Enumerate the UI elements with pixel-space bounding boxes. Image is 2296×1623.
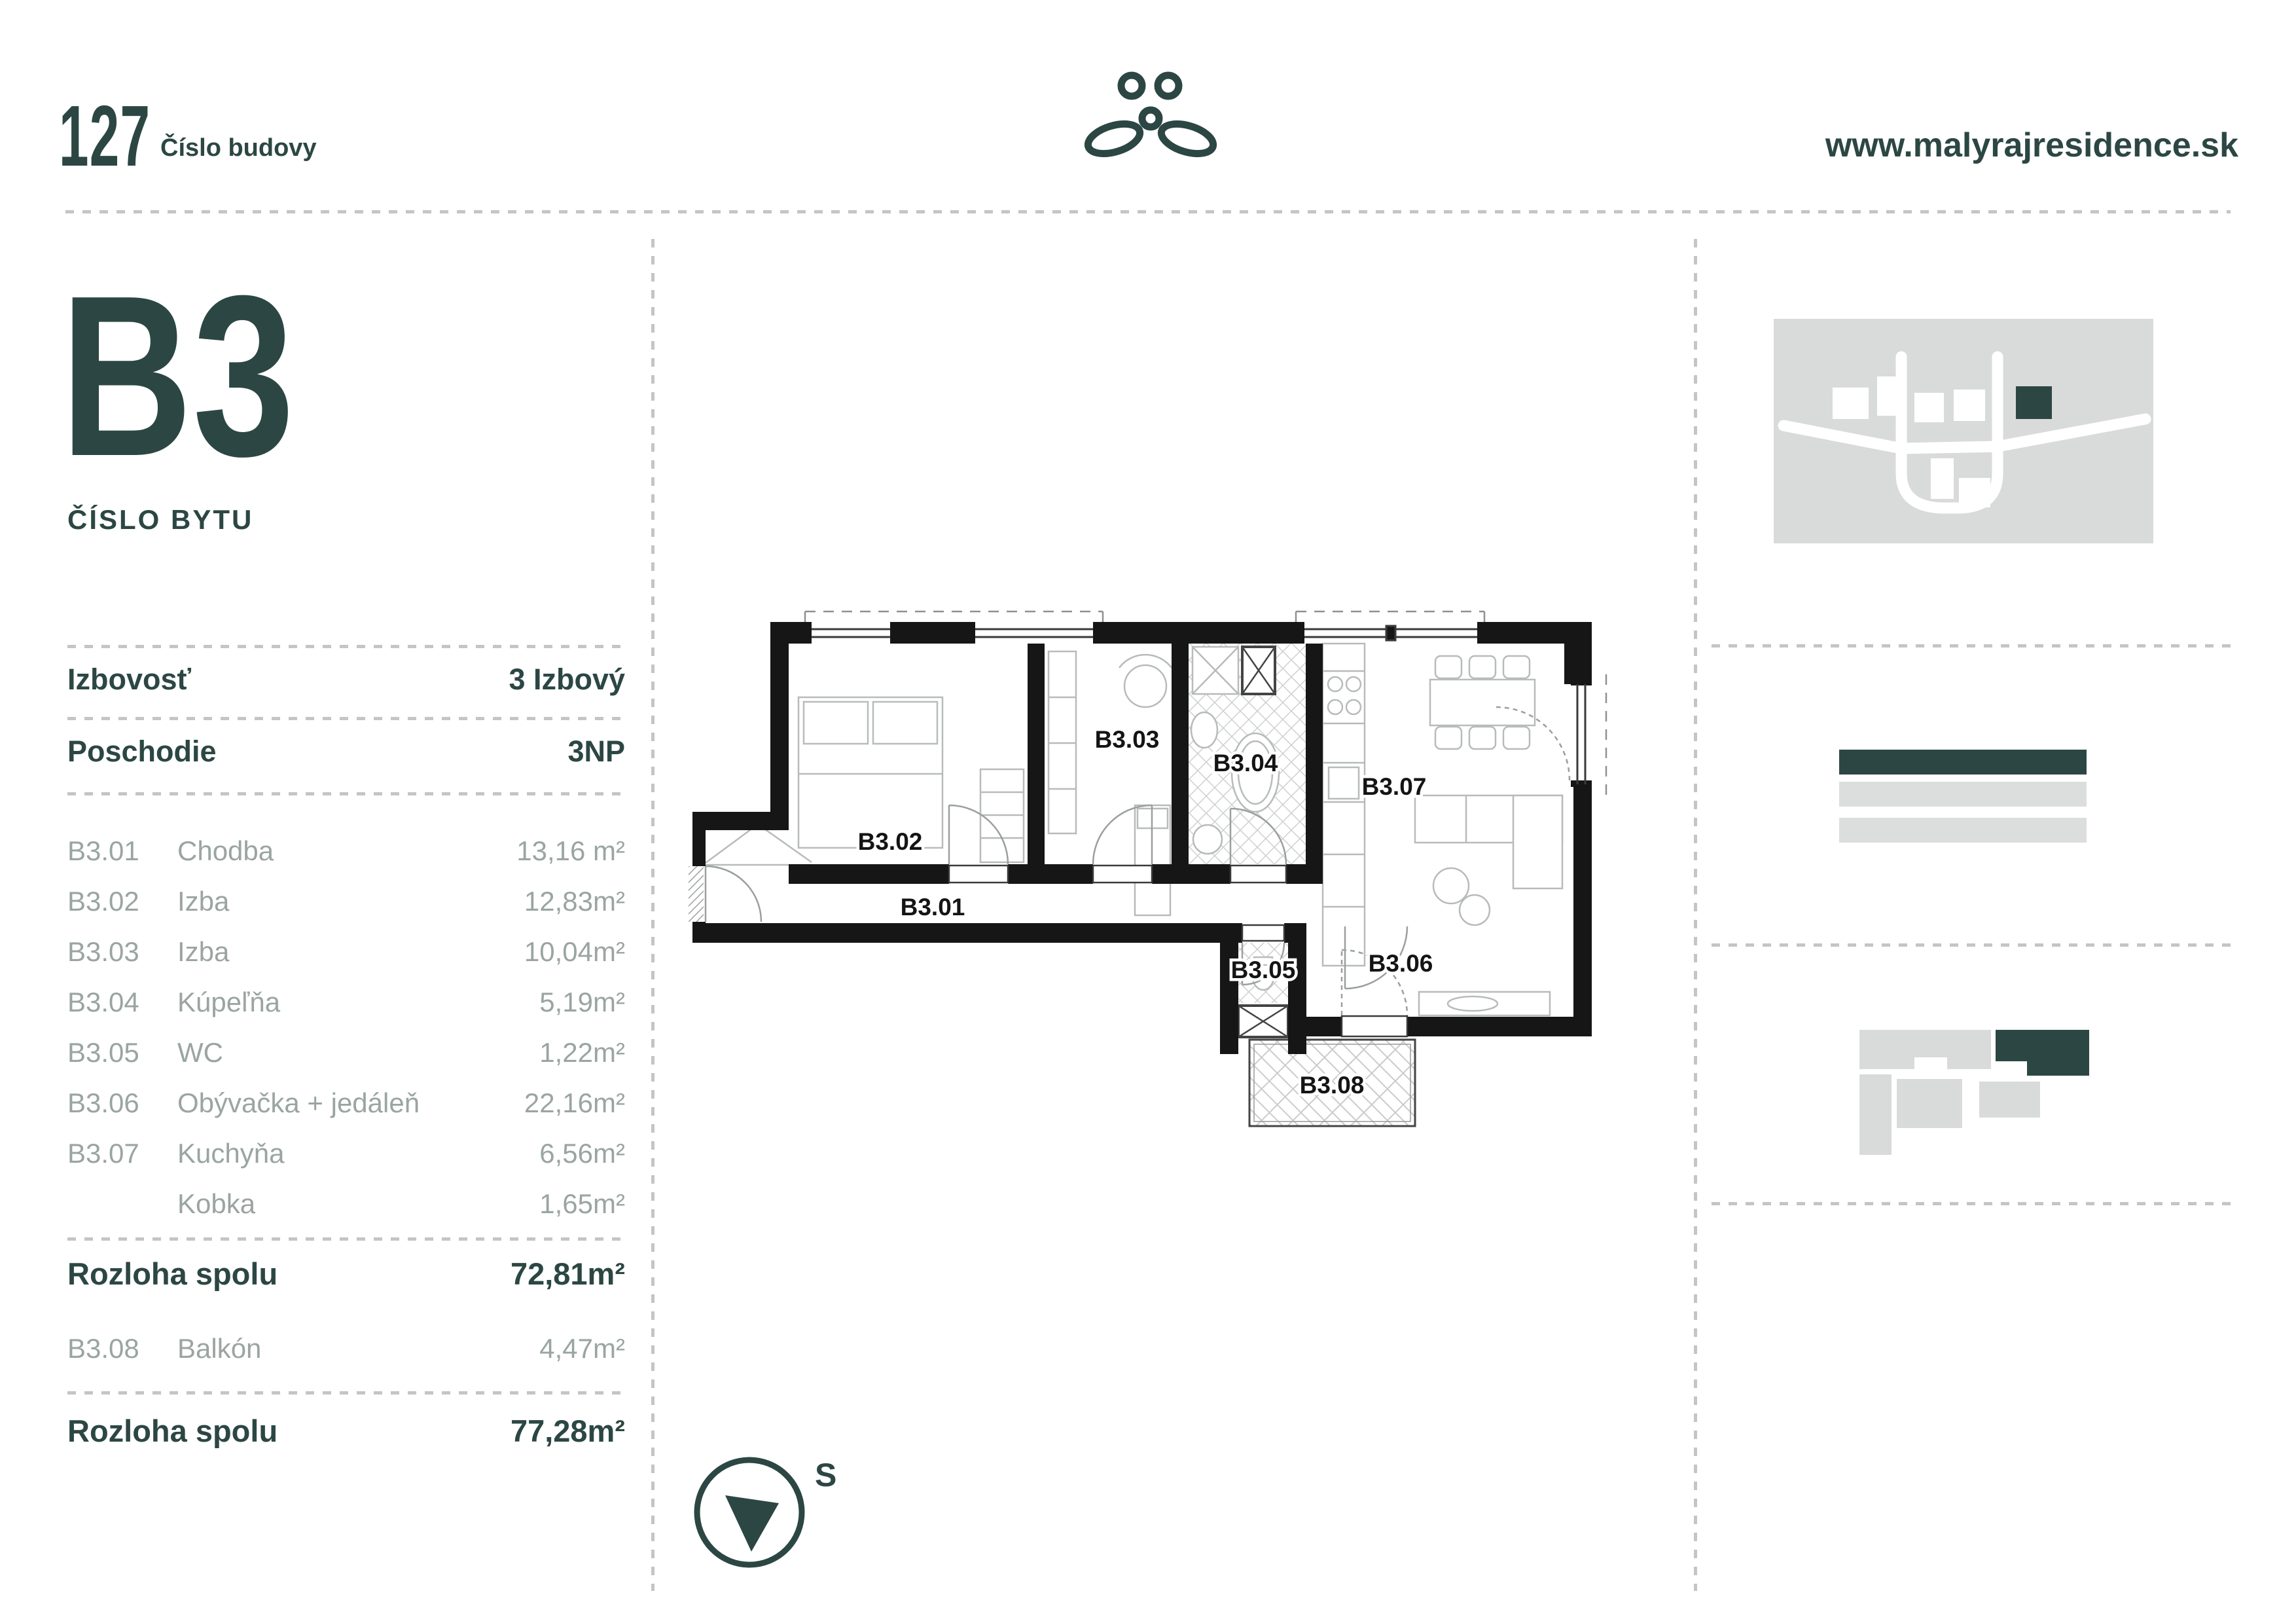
sidebar-divider <box>1712 943 2235 947</box>
room-list-row: Kobka 1,65m² <box>67 1187 625 1221</box>
sidebar-divider <box>1712 644 2235 647</box>
sidebar-divider <box>1712 1202 2235 1205</box>
room-list-row: B3.06 Obývačka + jedáleň 22,16m² <box>67 1086 625 1120</box>
room-label-b3-08: B3.08 <box>1300 1072 1365 1099</box>
room-area: 5,19m² <box>539 987 625 1018</box>
total-overall-row: Rozloha spolu 77,28m² <box>67 1413 625 1449</box>
balcony-row: B3.08 Balkón 4,47m² <box>67 1332 625 1366</box>
room-code: B3.03 <box>67 936 177 968</box>
room-code: B3.01 <box>67 835 177 867</box>
room-list-row: B3.07 Kuchyňa 6,56m² <box>67 1137 625 1171</box>
building-cluster-diagram <box>1852 1021 2094 1159</box>
floor-indicator <box>1839 818 2087 843</box>
site-location-map <box>1774 319 2153 543</box>
floor-indicator <box>1839 782 2087 807</box>
spec-label: Poschodie <box>67 735 217 769</box>
room-name: Kuchyňa <box>177 1138 539 1169</box>
room-label-b3-01: B3.01 <box>901 894 965 921</box>
room-list-row: B3.04 Kúpeľňa 5,19m² <box>67 985 625 1019</box>
room-code: B3.08 <box>67 1333 177 1364</box>
room-name: Kobka <box>177 1188 539 1220</box>
total-interior-row: Rozloha spolu 72,81m² <box>67 1256 625 1292</box>
unit-code: B3 <box>60 262 295 491</box>
compass: S <box>687 1448 897 1586</box>
totals-divider <box>67 1391 625 1395</box>
room-name: Izba <box>177 936 524 968</box>
spec-divider <box>67 645 625 648</box>
room-area: 6,56m² <box>539 1138 625 1169</box>
room-label-b3-04: B3.04 <box>1213 750 1278 776</box>
spec-value: 3NP <box>567 735 625 769</box>
total-label: Rozloha spolu <box>67 1413 278 1449</box>
cluster-highlighted-building <box>1996 1030 2089 1076</box>
furniture <box>706 644 1562 1037</box>
spec-divider <box>67 792 625 795</box>
room-area: 4,47m² <box>539 1333 625 1364</box>
unit-code-label: ČÍSLO BYTU <box>67 504 253 536</box>
building-number: 127 <box>59 93 151 179</box>
floor-plan: B3.01 B3.02 B3.03 B3.04 B3.05 B3.06 B3.0… <box>687 609 1636 1395</box>
room-name: WC <box>177 1037 539 1068</box>
total-label: Rozloha spolu <box>67 1256 278 1292</box>
entry-threshold-hatch <box>689 866 704 922</box>
room-name: Obývačka + jedáleň <box>177 1087 524 1119</box>
plant-logo-icon <box>1067 58 1230 169</box>
map-highlighted-building <box>2016 386 2052 419</box>
room-name: Kúpeľňa <box>177 987 539 1018</box>
room-code: B3.04 <box>67 987 177 1018</box>
header-divider <box>65 210 2231 213</box>
room-code: B3.06 <box>67 1087 177 1119</box>
room-area: 13,16 m² <box>516 835 625 867</box>
room-label-b3-02: B3.02 <box>858 828 923 855</box>
room-list-row: B3.05 WC 1,22m² <box>67 1036 625 1070</box>
spec-row-floor: Poschodie 3NP <box>67 733 625 769</box>
room-area: 1,65m² <box>539 1188 625 1220</box>
compass-direction-label: S <box>815 1457 836 1493</box>
room-area: 12,83m² <box>524 886 625 917</box>
building-number-label: Číslo budovy <box>160 134 317 162</box>
spec-label: Izbovosť <box>67 663 191 697</box>
total-value: 77,28m² <box>511 1413 625 1449</box>
spec-value: 3 Izbový <box>509 663 625 697</box>
column-divider-left <box>651 239 655 1591</box>
room-area: 22,16m² <box>524 1087 625 1119</box>
spec-row-rooms: Izbovosť 3 Izbový <box>67 661 625 697</box>
website-link[interactable]: www.malyrajresidence.sk <box>1825 126 2238 165</box>
room-area: 1,22m² <box>539 1037 625 1068</box>
room-label-b3-07: B3.07 <box>1362 773 1427 800</box>
room-name: Izba <box>177 886 524 917</box>
room-label-b3-06: B3.06 <box>1369 950 1433 977</box>
apartment-datasheet-page: 127 Číslo budovy www.malyrajresidence.sk… <box>0 0 2296 1623</box>
compass-needle-icon <box>725 1495 779 1552</box>
floor-indicator-active <box>1839 750 2087 775</box>
room-area: 10,04m² <box>524 936 625 968</box>
room-name: Chodba <box>177 835 516 867</box>
room-label-b3-03: B3.03 <box>1095 726 1160 753</box>
room-code: B3.02 <box>67 886 177 917</box>
room-label-b3-05: B3.05 <box>1231 957 1296 983</box>
total-value: 72,81m² <box>511 1256 625 1292</box>
room-code: B3.05 <box>67 1037 177 1068</box>
column-divider-right <box>1694 239 1697 1591</box>
room-list-row: B3.02 Izba 12,83m² <box>67 884 625 919</box>
room-name: Balkón <box>177 1333 539 1364</box>
room-code: B3.07 <box>67 1138 177 1169</box>
totals-divider <box>67 1237 625 1241</box>
spec-divider <box>67 717 625 720</box>
room-list-row: B3.03 Izba 10,04m² <box>67 935 625 969</box>
room-list-row: B3.01 Chodba 13,16 m² <box>67 834 625 868</box>
